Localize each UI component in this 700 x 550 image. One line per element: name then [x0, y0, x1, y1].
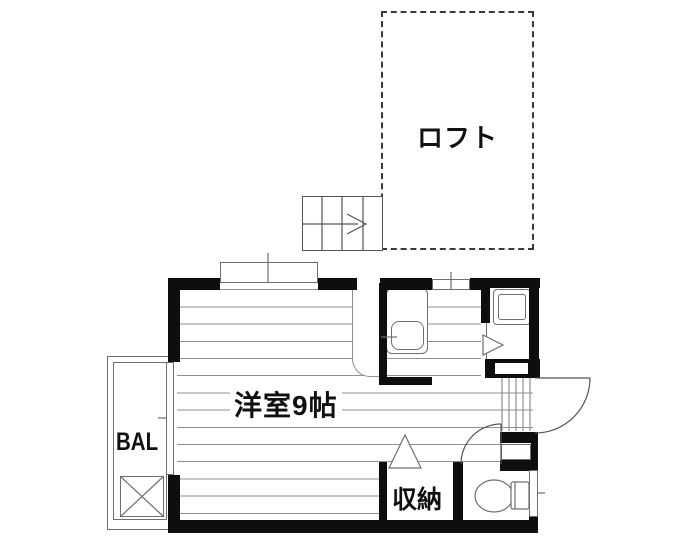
wall-storage-left — [379, 462, 387, 522]
storage-label: 収納 — [392, 480, 442, 516]
bathroom-wall-line — [486, 323, 487, 359]
loft-label: ロフト — [381, 118, 534, 155]
wall-left-upper — [168, 278, 180, 362]
entrance-door-arc — [535, 378, 590, 433]
staircase — [302, 196, 383, 251]
balcony-hatch-box — [120, 476, 164, 517]
wall-shoe-right — [531, 432, 538, 471]
wall-bottom — [168, 520, 538, 533]
main-room-label: 洋室9帖 — [230, 384, 342, 424]
shoe-cabinet — [501, 444, 531, 460]
window-top-right — [432, 279, 470, 290]
wall-top-kitchen — [380, 278, 432, 290]
wall-left-lower — [168, 475, 180, 525]
wall-bath-left — [481, 285, 490, 323]
window-top-left — [220, 262, 318, 283]
wall-kitchen-vertical — [379, 283, 387, 385]
window-toilet — [529, 470, 538, 517]
toilet-room — [462, 465, 529, 520]
kitchen-sink-icon — [391, 321, 424, 350]
shower-base-inner-icon — [498, 294, 526, 320]
wall-storage-right — [453, 462, 463, 522]
balcony-window — [166, 362, 174, 475]
wall-top-mid — [318, 278, 357, 290]
bath-sliding-door — [495, 363, 528, 374]
floor-plan-canvas: ロフト BAL 洋室9帖 収納 — [0, 0, 700, 550]
wall-kitchen-bottom — [379, 377, 432, 385]
balcony-label: BAL — [116, 428, 158, 457]
